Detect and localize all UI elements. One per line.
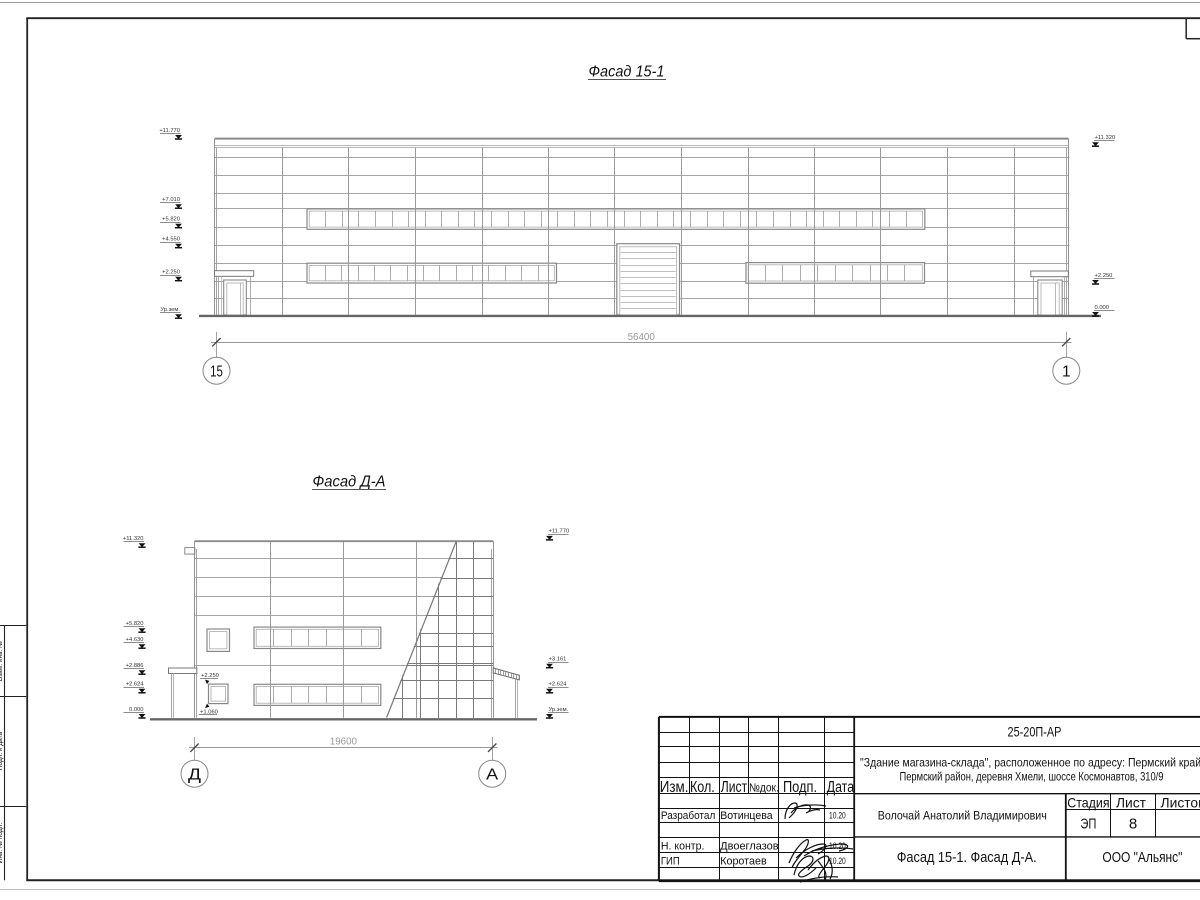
svg-text:Разработал: Разработал bbox=[661, 810, 715, 822]
svg-text:Фасад 15-1: Фасад 15-1 bbox=[589, 64, 665, 81]
svg-text:+4.550: +4.550 bbox=[162, 237, 180, 243]
svg-text:Вотинцева: Вотинцева bbox=[720, 810, 772, 822]
svg-text:56400: 56400 bbox=[628, 332, 656, 343]
svg-text:Изм.: Изм. bbox=[660, 779, 689, 796]
svg-text:19600: 19600 bbox=[330, 737, 358, 748]
svg-text:Коротаев: Коротаев bbox=[720, 855, 767, 867]
svg-text:Пермский район, деревня Хмели,: Пермский район, деревня Хмели, шоссе Кос… bbox=[900, 769, 1164, 783]
svg-text:8: 8 bbox=[1129, 815, 1137, 832]
svg-text:Ур.зем.: Ур.зем. bbox=[549, 707, 569, 713]
svg-text:ЭП: ЭП bbox=[1080, 815, 1096, 832]
svg-text:Подп.: Подп. bbox=[783, 779, 817, 796]
svg-text:ООО "Альянс": ООО "Альянс" bbox=[1102, 849, 1182, 866]
svg-text:Н. контр.: Н. контр. bbox=[661, 841, 705, 853]
svg-text:А: А bbox=[486, 767, 499, 784]
svg-text:Волочай Анатолий Владимирович: Волочай Анатолий Владимирович bbox=[878, 809, 1047, 823]
svg-text:0.000: 0.000 bbox=[129, 707, 144, 713]
svg-text:Кол.: Кол. bbox=[690, 779, 715, 796]
svg-text:0.000: 0.000 bbox=[1095, 305, 1110, 311]
svg-text:"Здание магазина-склада", расп: "Здание магазина-склада", расположенное … bbox=[860, 756, 1200, 770]
svg-text:+2.624: +2.624 bbox=[126, 682, 145, 688]
svg-text:+2.250: +2.250 bbox=[1095, 273, 1113, 279]
svg-text:1: 1 bbox=[1062, 364, 1071, 381]
svg-text:Инв. № подл.: Инв. № подл. bbox=[0, 823, 4, 864]
svg-text:Д: Д bbox=[188, 767, 202, 784]
svg-text:15: 15 bbox=[210, 364, 223, 381]
svg-text:Лист: Лист bbox=[1116, 795, 1147, 811]
svg-text:Взам. инв. №: Взам. инв. № bbox=[0, 641, 4, 681]
svg-text:+3.161: +3.161 bbox=[549, 657, 567, 663]
svg-text:Двоеглазов: Двоеглазов bbox=[720, 841, 779, 853]
svg-text:+11.770: +11.770 bbox=[549, 529, 570, 535]
svg-text:25-20П-АР: 25-20П-АР bbox=[1008, 723, 1062, 739]
svg-text:Листов: Листов bbox=[1161, 795, 1200, 811]
svg-text:Фасад Д-А: Фасад Д-А bbox=[313, 474, 386, 491]
svg-text:ГИП: ГИП bbox=[661, 855, 680, 867]
svg-text:Подп. и дата: Подп. и дата bbox=[0, 731, 4, 770]
svg-text:+2.624: +2.624 bbox=[549, 682, 568, 688]
svg-text:+2.250: +2.250 bbox=[162, 270, 180, 276]
svg-text:10.20: 10.20 bbox=[829, 810, 846, 820]
svg-text:Дата: Дата bbox=[827, 779, 855, 796]
svg-text:№док.: №док. bbox=[749, 780, 779, 794]
svg-text:+5.820: +5.820 bbox=[162, 217, 180, 223]
svg-text:+11.770: +11.770 bbox=[159, 128, 180, 134]
svg-text:Лист: Лист bbox=[721, 779, 747, 796]
svg-text:Фасад 15-1. Фасад Д-А.: Фасад 15-1. Фасад Д-А. bbox=[897, 849, 1037, 866]
svg-text:Стадия: Стадия bbox=[1067, 795, 1109, 811]
